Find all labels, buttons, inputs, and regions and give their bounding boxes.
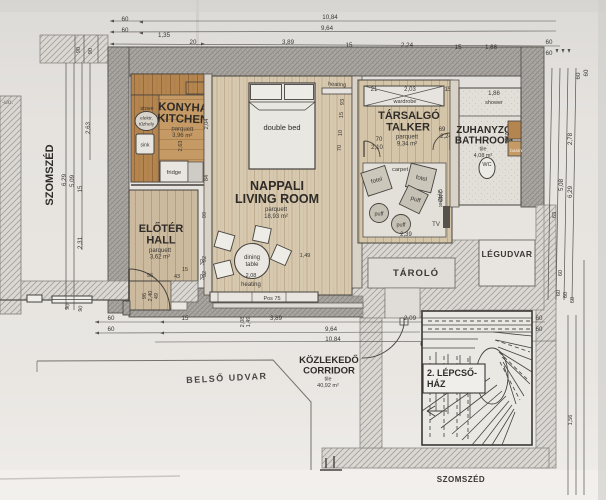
svg-text:60: 60 [546, 50, 553, 57]
svg-text:10,84: 10,84 [322, 14, 338, 21]
svg-text:LIVING ROOM: LIVING ROOM [235, 192, 319, 206]
svg-text:3,89: 3,89 [270, 315, 283, 322]
svg-text:1,49: 1,49 [246, 317, 252, 328]
svg-text:KÖZLEKEDŐ: KÖZLEKEDŐ [299, 354, 359, 366]
svg-text:9,64: 9,64 [325, 326, 338, 333]
svg-text:Pos 75: Pos 75 [263, 296, 280, 302]
svg-text:2,03: 2,03 [404, 87, 416, 93]
svg-text:elektr.: elektr. [140, 116, 153, 122]
svg-text:15: 15 [182, 267, 188, 273]
svg-text:6,29: 6,29 [567, 185, 574, 198]
svg-text:5,09: 5,09 [69, 174, 76, 187]
svg-text:60: 60 [536, 326, 543, 333]
svg-text:60: 60 [563, 292, 569, 298]
svg-text:18,93 m²: 18,93 m² [264, 214, 288, 220]
svg-text:puff: puff [396, 223, 406, 229]
svg-text:HALL: HALL [146, 235, 176, 247]
svg-text:15: 15 [346, 42, 353, 49]
svg-text:2,39: 2,39 [400, 232, 412, 238]
svg-text:parquett: parquett [265, 207, 287, 213]
svg-text:2,42: 2,42 [436, 190, 442, 202]
svg-text:2,63: 2,63 [85, 121, 92, 134]
svg-text:heating: heating [328, 82, 346, 89]
svg-text:2,63: 2,63 [178, 141, 184, 152]
svg-text:93: 93 [340, 99, 346, 105]
svg-text:TALKER: TALKER [386, 122, 430, 134]
svg-text:2. LÉPCSŐ-: 2. LÉPCSŐ- [427, 367, 477, 378]
svg-text:heating: heating [241, 282, 261, 288]
svg-text:10: 10 [338, 130, 344, 136]
svg-text:9,64: 9,64 [321, 25, 334, 32]
svg-text:sink: sink [141, 143, 150, 149]
svg-text:tile: tile [479, 147, 486, 153]
svg-text:69: 69 [439, 127, 446, 133]
svg-text:ELŐTÉR: ELŐTÉR [139, 222, 184, 235]
svg-text:3,62 m²: 3,62 m² [150, 255, 170, 261]
svg-text:15: 15 [182, 315, 189, 322]
svg-text:1,56: 1,56 [568, 415, 574, 426]
svg-text:carpet: carpet [392, 167, 409, 173]
svg-text:TÁROLÓ: TÁROLÓ [393, 267, 439, 279]
svg-text:60: 60 [536, 315, 543, 322]
svg-text:SZOMSZÉD: SZOMSZÉD [43, 144, 56, 205]
svg-text:99: 99 [202, 212, 208, 218]
svg-text:dining: dining [244, 255, 260, 261]
svg-text:2,08: 2,08 [246, 273, 257, 279]
svg-text:table: table [245, 262, 259, 268]
svg-text:70: 70 [376, 137, 383, 143]
svg-text:TÁRSALGÓ: TÁRSALGÓ [378, 109, 440, 122]
svg-text:60: 60 [546, 39, 553, 46]
svg-text:2,04: 2,04 [204, 119, 210, 130]
svg-text:-uo.: -uo. [2, 99, 13, 106]
svg-text:CORRIDOR: CORRIDOR [303, 366, 355, 377]
svg-text:1,86: 1,86 [488, 91, 500, 97]
svg-text:84: 84 [204, 175, 210, 181]
svg-text:3,96 m²: 3,96 m² [172, 133, 193, 140]
svg-text:70: 70 [337, 145, 343, 151]
svg-text:NAPPALI: NAPPALI [250, 179, 304, 193]
svg-text:basin: basin [510, 148, 522, 154]
svg-text:shower: shower [485, 100, 503, 106]
svg-text:20: 20 [190, 39, 197, 46]
svg-text:TV: TV [432, 222, 440, 228]
svg-text:WC: WC [482, 162, 491, 168]
svg-text:puff: puff [374, 212, 384, 218]
svg-text:tűzhely: tűzhely [139, 122, 155, 128]
svg-text:parquett: parquett [149, 248, 171, 254]
svg-text:40,92 m²: 40,92 m² [317, 383, 339, 389]
svg-text:2,09: 2,09 [404, 315, 417, 322]
svg-text:1,66: 1,66 [485, 44, 498, 51]
svg-text:double bed: double bed [263, 123, 300, 132]
svg-text:KITCHEN: KITCHEN [157, 113, 209, 127]
svg-text:60: 60 [558, 270, 564, 276]
svg-text:1,35: 1,35 [158, 32, 171, 39]
svg-text:60: 60 [575, 72, 582, 79]
svg-text:32: 32 [202, 271, 208, 277]
svg-text:9,34 m²: 9,34 m² [397, 142, 417, 148]
svg-text:fridge: fridge [167, 170, 182, 176]
svg-text:60: 60 [570, 297, 576, 303]
svg-text:60: 60 [108, 315, 115, 322]
svg-text:2,10: 2,10 [371, 145, 383, 151]
svg-text:SZOMSZÉD: SZOMSZÉD [437, 475, 485, 484]
svg-text:2,24: 2,24 [401, 42, 414, 49]
svg-text:2,31: 2,31 [77, 236, 84, 249]
svg-text:21: 21 [371, 87, 378, 93]
svg-text:43: 43 [174, 274, 180, 280]
svg-text:HÁZ: HÁZ [427, 379, 446, 389]
svg-text:2,78: 2,78 [567, 132, 574, 145]
svg-text:15: 15 [455, 44, 462, 51]
svg-text:10,84: 10,84 [325, 336, 341, 343]
svg-text:63: 63 [552, 212, 558, 218]
svg-text:90: 90 [78, 305, 85, 312]
svg-text:60: 60 [122, 16, 129, 23]
svg-text:parquett: parquett [396, 135, 418, 141]
svg-text:60: 60 [122, 27, 129, 34]
svg-text:90: 90 [65, 303, 72, 310]
svg-text:90: 90 [76, 47, 82, 53]
svg-text:LÉGUDVAR: LÉGUDVAR [481, 249, 532, 259]
svg-text:3,89: 3,89 [282, 39, 295, 46]
svg-text:60: 60 [583, 69, 590, 76]
svg-text:wardrobe: wardrobe [393, 99, 417, 105]
svg-text:49: 49 [154, 293, 160, 299]
svg-text:2,46: 2,46 [503, 133, 509, 144]
svg-text:6,29: 6,29 [61, 173, 68, 186]
svg-text:60: 60 [108, 326, 115, 333]
svg-text:5,08: 5,08 [558, 178, 565, 191]
svg-text:90: 90 [88, 48, 94, 54]
svg-text:1,49: 1,49 [300, 253, 311, 259]
svg-text:96: 96 [147, 273, 153, 279]
svg-text:60: 60 [556, 290, 562, 296]
svg-text:15: 15 [339, 112, 345, 118]
svg-text:tile: tile [324, 377, 331, 383]
svg-text:92: 92 [202, 256, 208, 262]
svg-text:15: 15 [77, 185, 84, 192]
